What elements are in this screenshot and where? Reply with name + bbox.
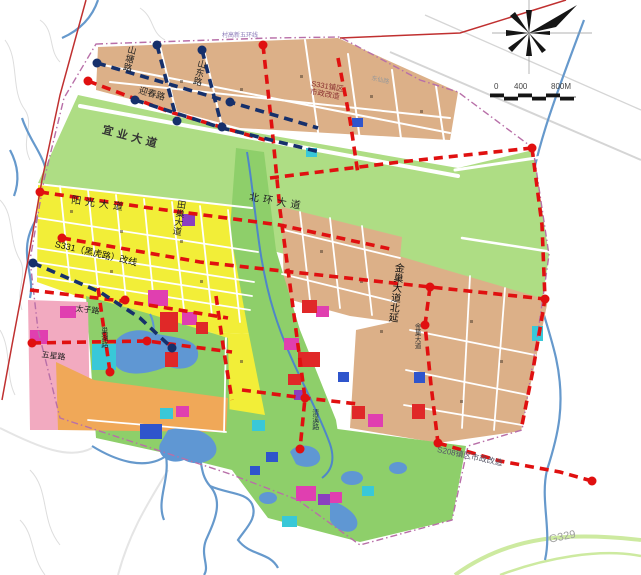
urban-planning-map: 村高新五环线 山塘路 山东路 迎春路 宜业大道 S331镇区 市政改造 东仙路 … — [0, 0, 641, 575]
scale-label-400: 400 — [514, 83, 527, 92]
label-jinchao-avenue: 金巢大道 — [413, 323, 420, 349]
scale-label-0: 0 — [494, 83, 498, 92]
scale-bar — [490, 94, 576, 101]
label-qingxi-road: 清溪路 — [311, 409, 319, 430]
label-cungao-line: 村高新五环线 — [222, 33, 258, 40]
scale-label-800m: 800M — [551, 83, 571, 92]
label-chaohu-road: 巢湖路 — [100, 327, 108, 348]
